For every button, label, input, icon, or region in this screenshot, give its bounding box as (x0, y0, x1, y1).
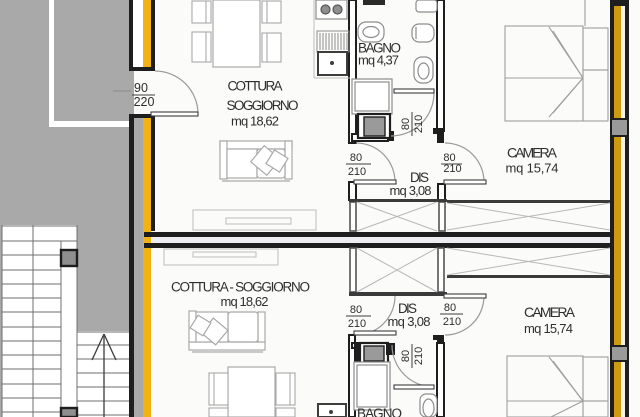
svg-text:80: 80 (400, 350, 412, 362)
svg-text:210: 210 (413, 115, 425, 133)
svg-text:mq 18,62: mq 18,62 (221, 294, 269, 309)
svg-text:mq 3,08: mq 3,08 (390, 183, 432, 198)
svg-text:mq 18,62: mq 18,62 (231, 114, 279, 129)
svg-text:220: 220 (134, 95, 155, 109)
svg-text:mq 4,37: mq 4,37 (358, 53, 399, 68)
svg-text:COTTURA: COTTURA (228, 79, 283, 94)
svg-text:CAMERA: CAMERA (524, 304, 576, 320)
svg-text:mq 15,74: mq 15,74 (524, 321, 573, 336)
svg-text:210: 210 (413, 347, 425, 365)
svg-text:CAMERA: CAMERA (507, 145, 558, 161)
svg-text:80: 80 (400, 118, 412, 130)
svg-text:210: 210 (348, 318, 366, 330)
svg-text:90: 90 (134, 81, 148, 95)
svg-text:COTTURA - SOGGIORNO: COTTURA - SOGGIORNO (171, 280, 310, 295)
svg-text:mq 3,08: mq 3,08 (388, 314, 431, 329)
svg-text:mq 15,74: mq 15,74 (506, 161, 559, 176)
svg-text:SOGGIORNO: SOGGIORNO (227, 98, 299, 113)
svg-text:80: 80 (350, 304, 362, 316)
svg-text:210: 210 (443, 163, 461, 175)
svg-text:210: 210 (443, 316, 461, 328)
svg-text:BAGNO: BAGNO (357, 406, 402, 417)
svg-text:210: 210 (348, 166, 366, 178)
svg-text:80: 80 (444, 302, 456, 314)
svg-text:80: 80 (350, 152, 362, 164)
